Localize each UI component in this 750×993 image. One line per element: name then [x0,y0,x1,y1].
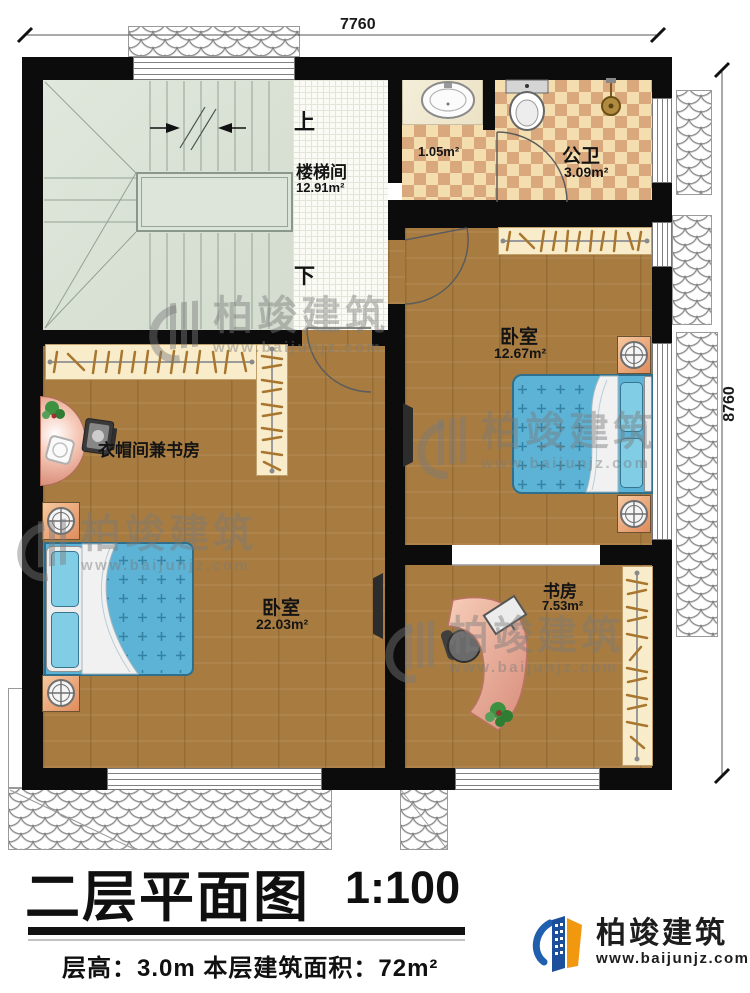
watermark-url: www.baijunjz.com [481,455,657,472]
wall-right-4 [652,540,672,768]
bathroom-floor [495,80,652,200]
watermark-url: www.baijunjz.com [81,557,257,574]
wardrobe-study [622,566,653,766]
window-bathroom-right [652,98,672,183]
wall-bedroom-study-a [405,545,452,565]
roof-tiles-bottom-left [8,788,332,850]
brand-logo-icon [528,908,590,976]
window-study-bottom [455,768,600,790]
label-bedroom-left-area: 22.03m² [256,616,308,632]
watermark-logo-icon [150,296,204,356]
watermark: 柏竣建筑 www.baijunjz.com [150,296,389,356]
roof-tiles-top [128,26,300,57]
roof-tiles-right-1 [676,90,712,195]
nightstand-right-bottom [617,495,651,533]
window-bedroom-left-bottom [107,768,322,790]
wall-bottom-3 [600,768,672,790]
pillow-left-2 [51,612,79,668]
label-cloak-study: 衣帽间兼书房 [98,436,200,461]
watermark-brand: 柏竣建筑 [481,412,657,452]
window-stairwell-top [133,57,295,80]
title-rule-thin [28,939,465,941]
bath-lobby-floor [402,125,495,200]
floorplan-page: 7760 8760 上 下 楼梯间 12.91m² 1.05m² 公卫 3.09… [0,0,750,993]
watermark-logo-icon [18,514,72,574]
roof-tiles-right-3 [676,332,718,637]
wardrobe-cloak-vertical [256,344,288,476]
bedroom-right-door-opening [388,240,405,304]
label-bedroom-right-area: 12.67m² [494,345,546,361]
wall-right-1 [652,57,672,98]
brand-logo-text: 柏竣建筑 [596,917,749,950]
roof-tiles-bottom-mid [400,788,448,850]
wall-middle-vertical [385,346,405,768]
dimension-top: 7760 [340,16,376,34]
brand-logo-url: www.baijunjz.com [596,950,749,967]
stair-landing [136,172,293,232]
wall-bath-partition [483,80,495,130]
wall-top-right [295,57,672,80]
label-study-area: 7.53m² [542,598,583,613]
label-stairs-up: 上 [294,106,315,136]
window-bedroom-right-small [652,222,672,267]
label-bath-lobby-area: 1.05m² [418,144,459,159]
watermark-url: www.baijunjz.com [213,339,389,356]
label-bathroom-area: 3.09m² [564,164,608,180]
wall-bottom-2 [322,768,455,790]
wall-bottom-1 [22,768,107,790]
plan-specs: 层高：3.0m 本层建筑面积：72m² [62,948,438,983]
stair-landing-inner [141,177,288,227]
watermark: 柏竣建筑 www.baijunjz.com [418,412,657,472]
wall-right-3 [652,267,672,343]
watermark-logo-icon [386,616,440,676]
brand-logo: 柏竣建筑 www.baijunjz.com [528,908,749,976]
watermark-brand: 柏竣建筑 [213,296,389,336]
page-title: 二层平面图 [25,852,310,932]
wall-bath-bottom [388,200,652,228]
wall-corridor-bedroom-a [388,228,405,240]
roof-tiles-right-2 [672,215,712,325]
plan-scale: 1:100 [345,862,460,914]
label-stairwell-area: 12.91m² [296,180,344,195]
nightstand-right-top [617,336,651,374]
bath-counter [402,78,483,125]
watermark-brand: 柏竣建筑 [81,514,257,554]
wall-corridor-bedroom-b [388,304,405,330]
tv-bedroom-right [403,403,413,467]
watermark-logo-icon [418,412,472,472]
watermark-brand: 柏竣建筑 [449,616,625,656]
wall-bedroom-study-b [600,545,652,565]
watermark-url: www.baijunjz.com [449,659,625,676]
wall-corridor-bath [388,80,402,183]
wall-right-2 [652,183,672,222]
label-stairs-down: 下 [294,260,315,290]
wardrobe-bedroom-right [498,227,652,255]
watermark: 柏竣建筑 www.baijunjz.com [386,616,625,676]
title-rule-thick [28,927,465,935]
dimension-right: 8760 [721,386,739,422]
watermark: 柏竣建筑 www.baijunjz.com [18,514,257,574]
nightstand-left-bottom [42,675,80,712]
tv-bedroom-left [373,573,383,639]
